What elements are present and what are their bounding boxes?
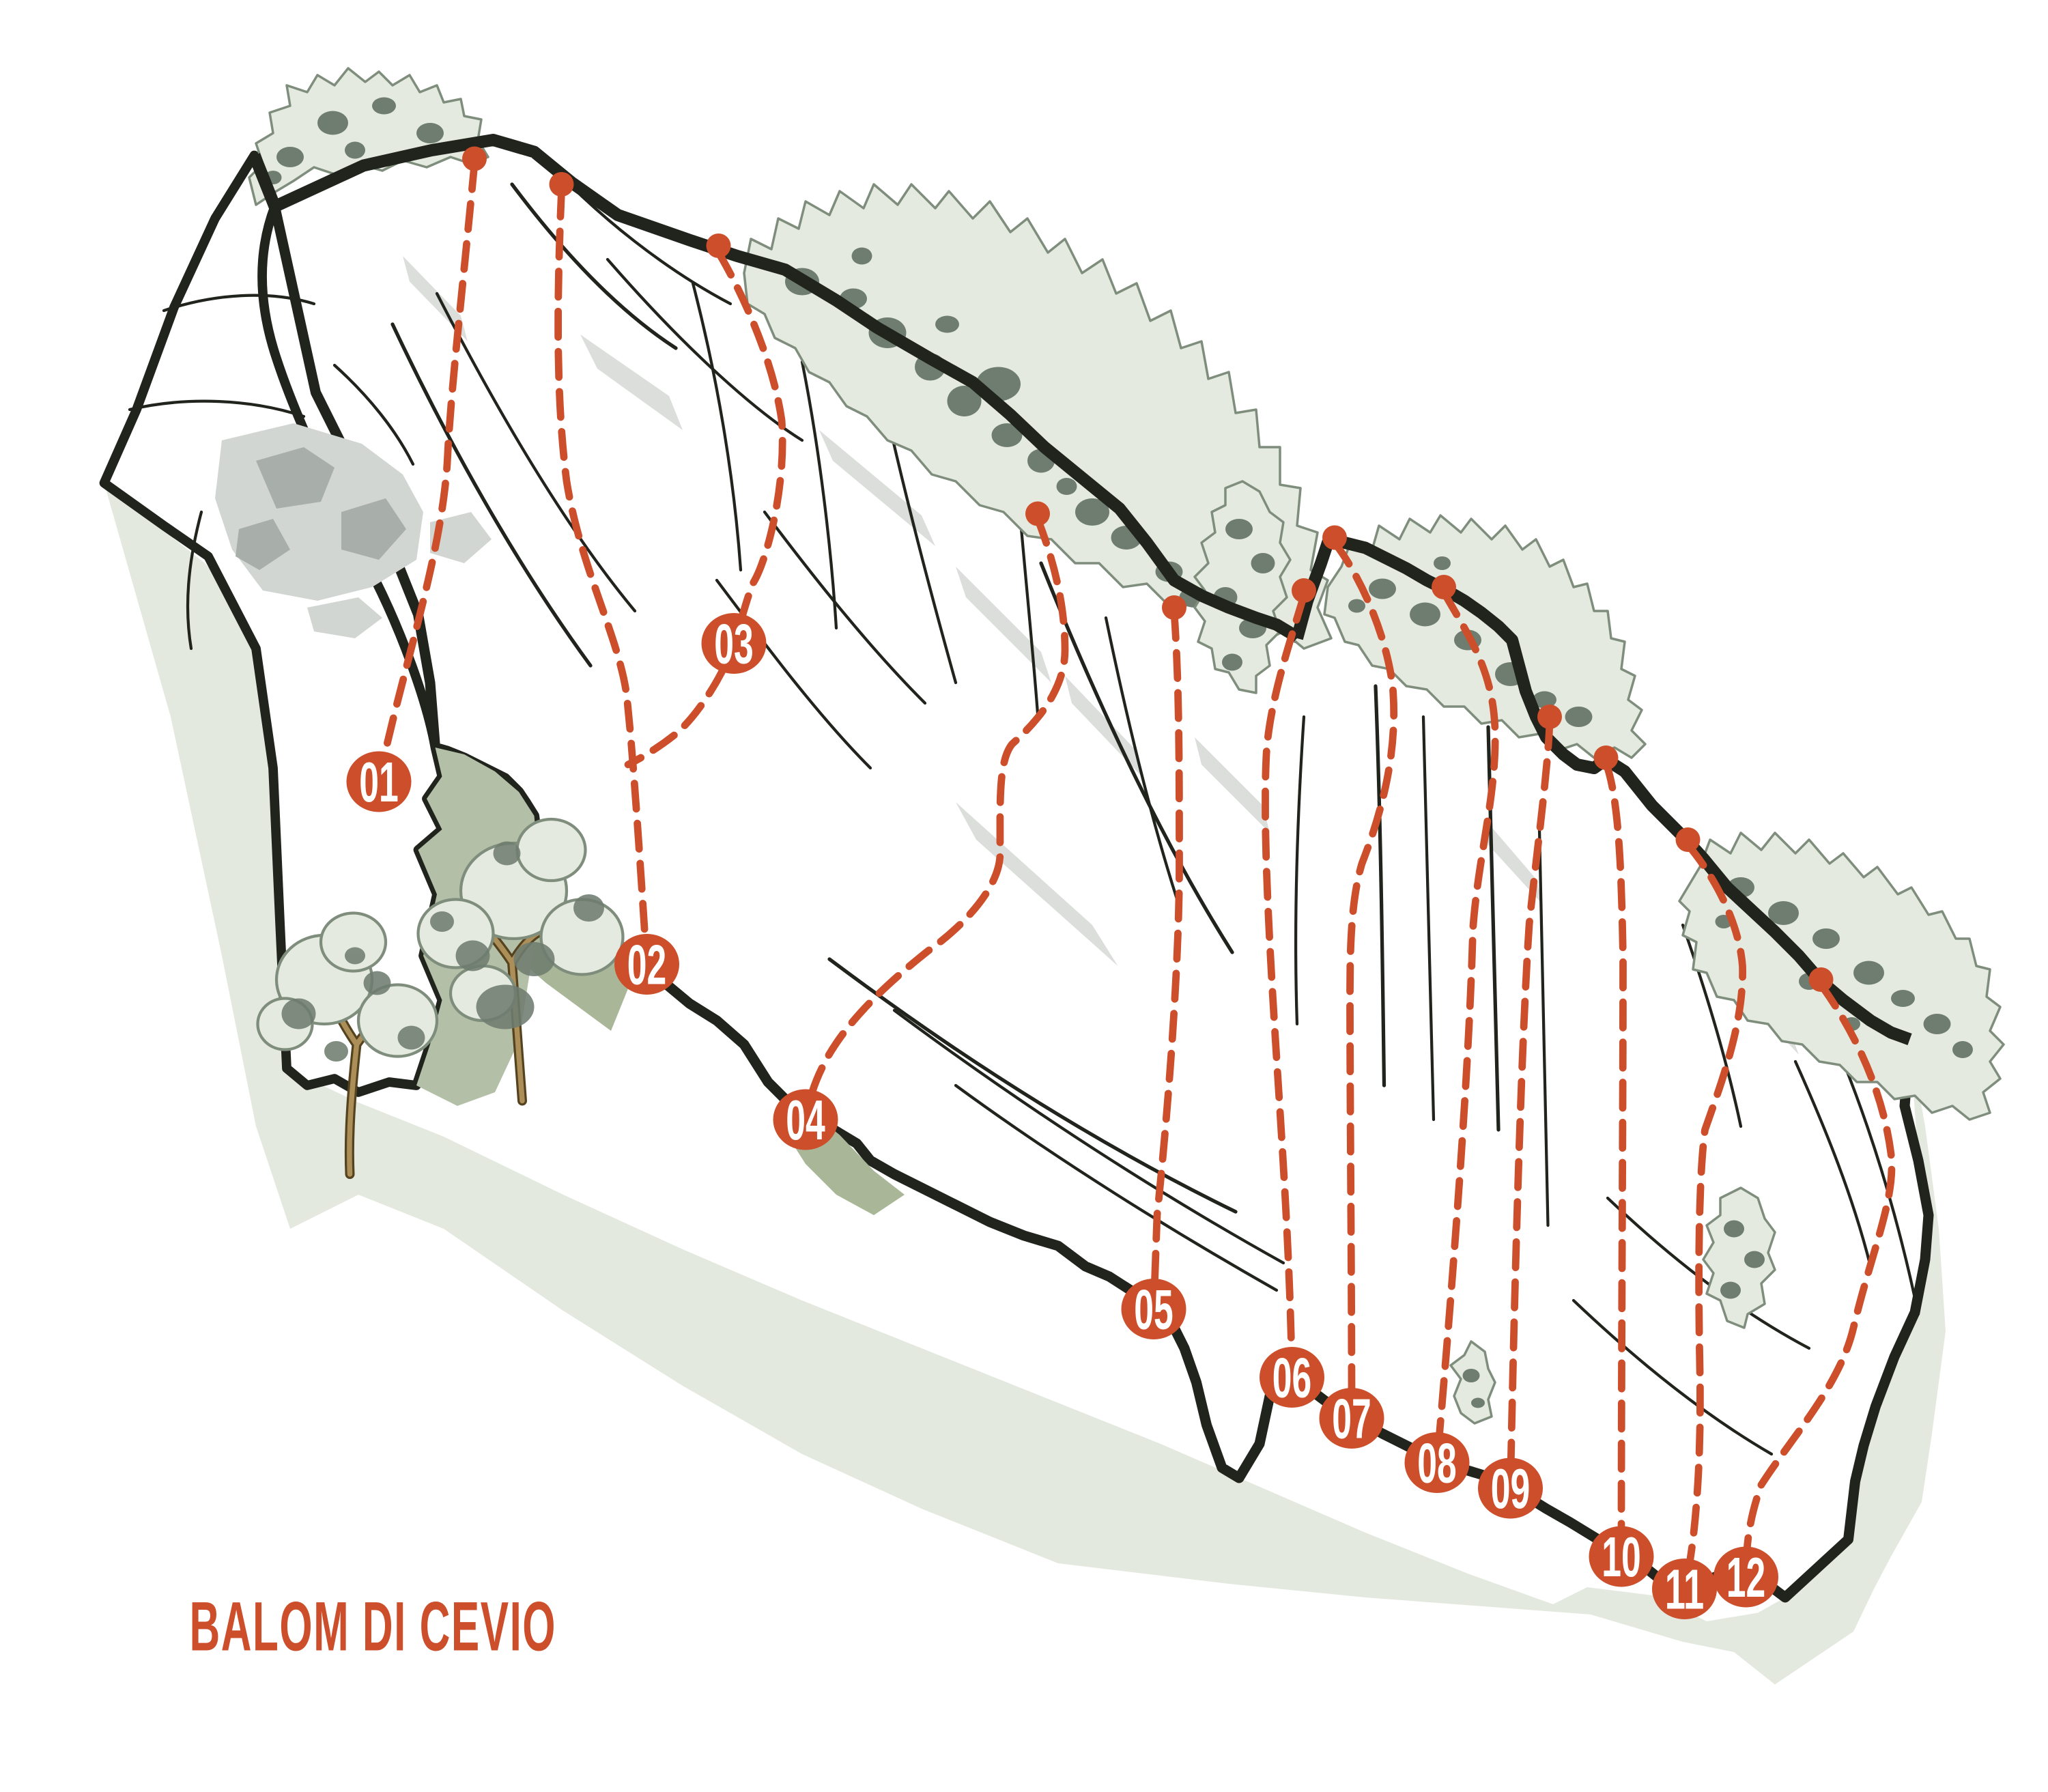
route-badge-number-04: 04 — [786, 1089, 825, 1152]
route-badge-number-06: 06 — [1272, 1346, 1312, 1409]
route-badge-10: 10 — [1589, 1526, 1654, 1589]
topo-page: 010203040506070809101112 BALOM DI CEVIO — [0, 0, 2048, 1792]
route-badge-number-03: 03 — [714, 612, 754, 675]
route-07-anchor-dot — [1322, 526, 1347, 550]
route-05-anchor-dot — [1162, 595, 1186, 620]
route-06-anchor-dot — [1292, 578, 1316, 603]
crag-title: BALOM DI CEVIO — [190, 1587, 557, 1666]
route-badge-09: 09 — [1478, 1457, 1543, 1520]
route-badge-number-10: 10 — [1602, 1526, 1641, 1589]
route-badge-12: 12 — [1713, 1546, 1778, 1609]
route-11-anchor-dot — [1676, 827, 1701, 852]
route-badge-07: 07 — [1320, 1387, 1384, 1450]
route-01-anchor-dot — [462, 147, 487, 171]
route-badge-number-01: 01 — [359, 751, 399, 814]
route-badge-number-07: 07 — [1332, 1387, 1371, 1450]
route-badge-number-11: 11 — [1665, 1558, 1705, 1621]
route-09-anchor-dot — [1537, 705, 1562, 729]
route-04-anchor-dot — [1025, 502, 1050, 526]
route-badge-number-09: 09 — [1491, 1457, 1531, 1520]
route-02-anchor-dot — [550, 172, 574, 197]
route-badge-number-02: 02 — [627, 933, 667, 996]
route-badge-number-12: 12 — [1726, 1546, 1766, 1609]
route-08-anchor-dot — [1432, 575, 1456, 599]
crag-topo-illustration: 010203040506070809101112 BALOM DI CEVIO — [0, 0, 2048, 1792]
route-12-anchor-dot — [1809, 967, 1834, 992]
route-03-anchor-dot — [707, 233, 731, 258]
route-10-anchor-dot — [1594, 745, 1619, 770]
route-badge-number-05: 05 — [1134, 1278, 1174, 1341]
route-badge-08: 08 — [1405, 1432, 1470, 1494]
route-badge-number-08: 08 — [1417, 1432, 1457, 1494]
